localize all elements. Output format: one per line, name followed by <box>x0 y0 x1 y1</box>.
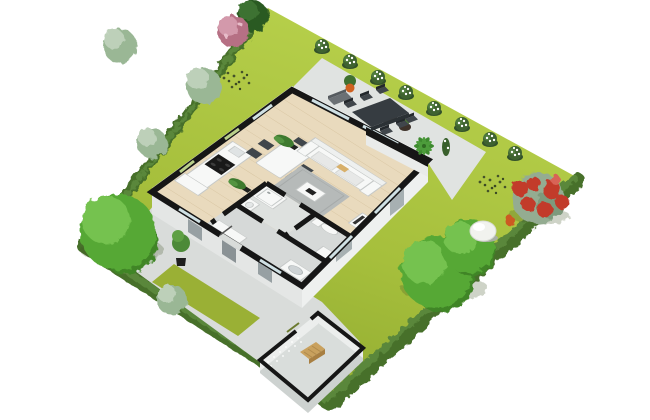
skinny-shrub <box>442 138 450 156</box>
silver-green-tree <box>157 285 187 315</box>
floor-plan-render <box>0 0 650 420</box>
silver-green-tree <box>186 68 222 104</box>
pink-flowering-tree <box>217 15 249 47</box>
orange-flower-bit <box>505 216 515 226</box>
garden-scene <box>0 0 650 420</box>
silver-green-tree <box>103 29 137 63</box>
silver-green-tree <box>137 128 167 158</box>
